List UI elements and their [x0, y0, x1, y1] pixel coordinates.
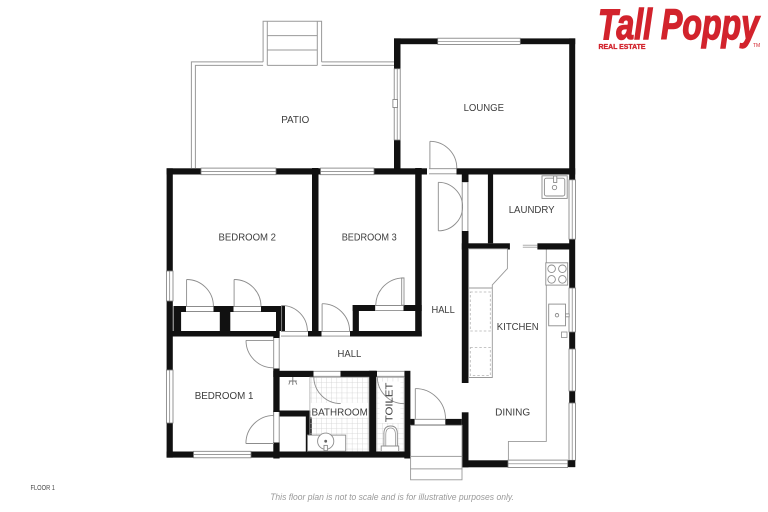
svg-text:LOUNGE: LOUNGE	[464, 103, 505, 114]
svg-text:KITCHEN: KITCHEN	[497, 322, 539, 333]
svg-text:BEDROOM 3: BEDROOM 3	[342, 233, 397, 244]
svg-text:TOILET: TOILET	[384, 382, 395, 422]
svg-text:BEDROOM 1: BEDROOM 1	[195, 391, 254, 402]
svg-text:HALL: HALL	[432, 305, 456, 316]
svg-text:FLOOR 1: FLOOR 1	[31, 483, 56, 492]
svg-text:REAL ESTATE: REAL ESTATE	[599, 42, 646, 51]
svg-text:BEDROOM 2: BEDROOM 2	[219, 233, 277, 244]
svg-text:LAUNDRY: LAUNDRY	[509, 205, 555, 216]
svg-text:BATHROOM: BATHROOM	[312, 408, 368, 419]
svg-text:HALL: HALL	[338, 349, 362, 360]
svg-text:TM: TM	[753, 43, 760, 49]
svg-text:This floor plan is not to scal: This floor plan is not to scale and is f…	[270, 492, 514, 502]
svg-text:PATIO: PATIO	[281, 115, 309, 126]
svg-text:DINING: DINING	[495, 408, 530, 419]
